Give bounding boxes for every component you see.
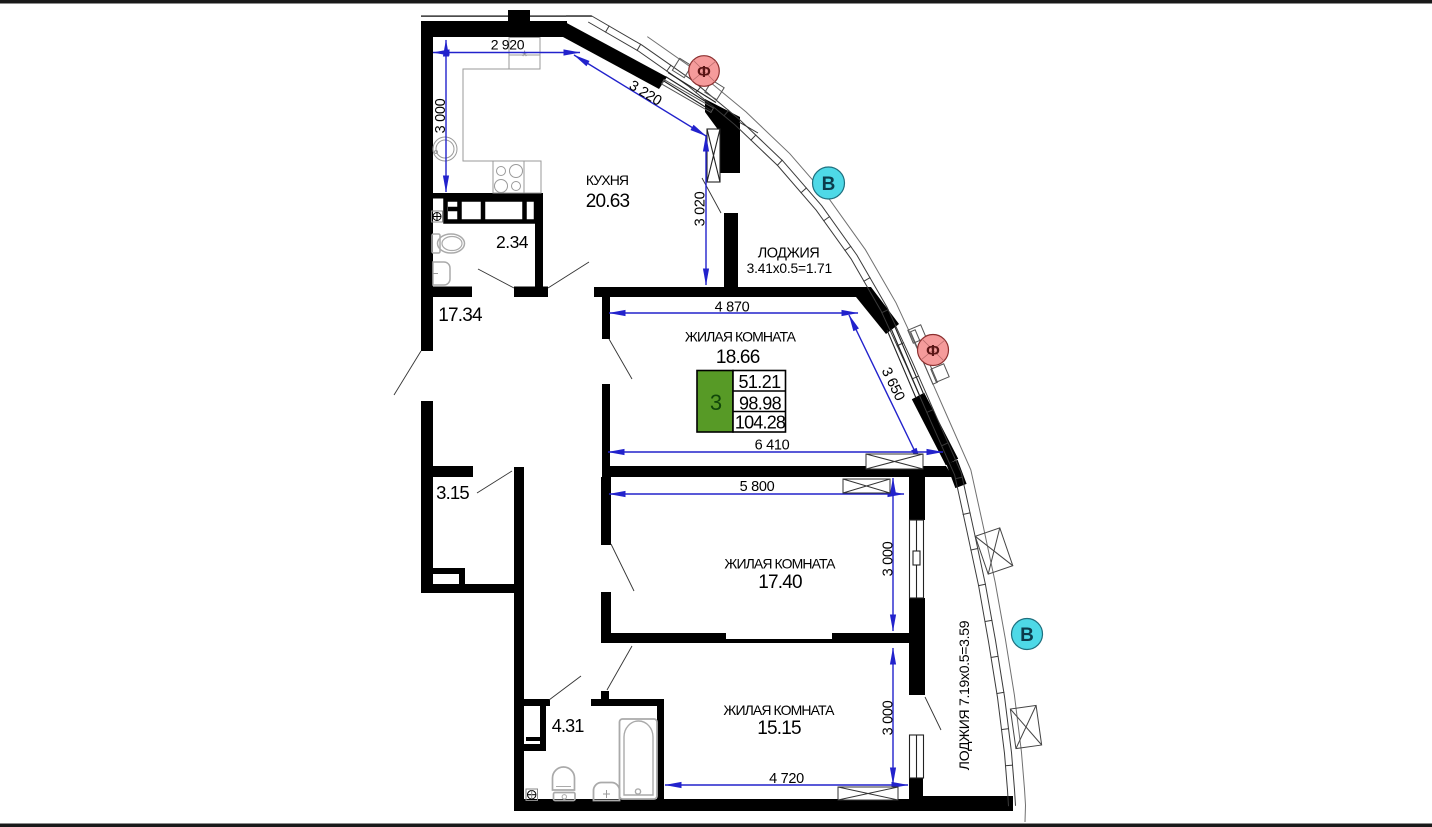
svg-text:17.34: 17.34 xyxy=(438,305,483,326)
svg-text:ЛОДЖИЯ: ЛОДЖИЯ xyxy=(758,246,820,262)
svg-text:2 920: 2 920 xyxy=(491,37,525,53)
svg-text:2.34: 2.34 xyxy=(496,232,529,252)
svg-text:ЛОДЖИЯ 7.19х0.5=3.59: ЛОДЖИЯ 7.19х0.5=3.59 xyxy=(956,620,972,770)
svg-text:Ф: Ф xyxy=(926,343,940,360)
svg-text:104.28: 104.28 xyxy=(735,413,786,433)
svg-text:4 720: 4 720 xyxy=(769,771,804,787)
svg-text:20.63: 20.63 xyxy=(586,191,630,212)
svg-text:КУХНЯ: КУХНЯ xyxy=(586,172,628,188)
svg-text:18.66: 18.66 xyxy=(716,347,760,368)
svg-text:3.15: 3.15 xyxy=(436,482,469,503)
svg-text:15.15: 15.15 xyxy=(757,718,801,739)
svg-text:3 000: 3 000 xyxy=(433,98,449,133)
svg-text:ЖИЛАЯ КОМНАТА: ЖИЛАЯ КОМНАТА xyxy=(724,556,836,572)
svg-text:5 800: 5 800 xyxy=(740,479,775,495)
svg-text:6 410: 6 410 xyxy=(755,438,790,454)
svg-text:98.98: 98.98 xyxy=(739,394,782,414)
svg-text:51.21: 51.21 xyxy=(738,372,781,392)
svg-text:В: В xyxy=(1020,625,1034,646)
svg-text:3 000: 3 000 xyxy=(881,541,897,576)
svg-text:3 000: 3 000 xyxy=(881,700,897,735)
svg-text:3 020: 3 020 xyxy=(693,191,709,226)
svg-text:Ф: Ф xyxy=(697,64,711,81)
svg-text:4 870: 4 870 xyxy=(715,300,750,316)
svg-text:ЖИЛАЯ КОМНАТА: ЖИЛАЯ КОМНАТА xyxy=(685,329,797,345)
svg-text:3.41х0.5=1.71: 3.41х0.5=1.71 xyxy=(747,261,832,276)
svg-text:В: В xyxy=(822,174,836,195)
svg-text:17.40: 17.40 xyxy=(758,572,802,593)
svg-text:4.31: 4.31 xyxy=(552,716,585,736)
svg-text:3: 3 xyxy=(710,390,722,415)
svg-text:ЖИЛАЯ КОМНАТА: ЖИЛАЯ КОМНАТА xyxy=(723,702,835,718)
